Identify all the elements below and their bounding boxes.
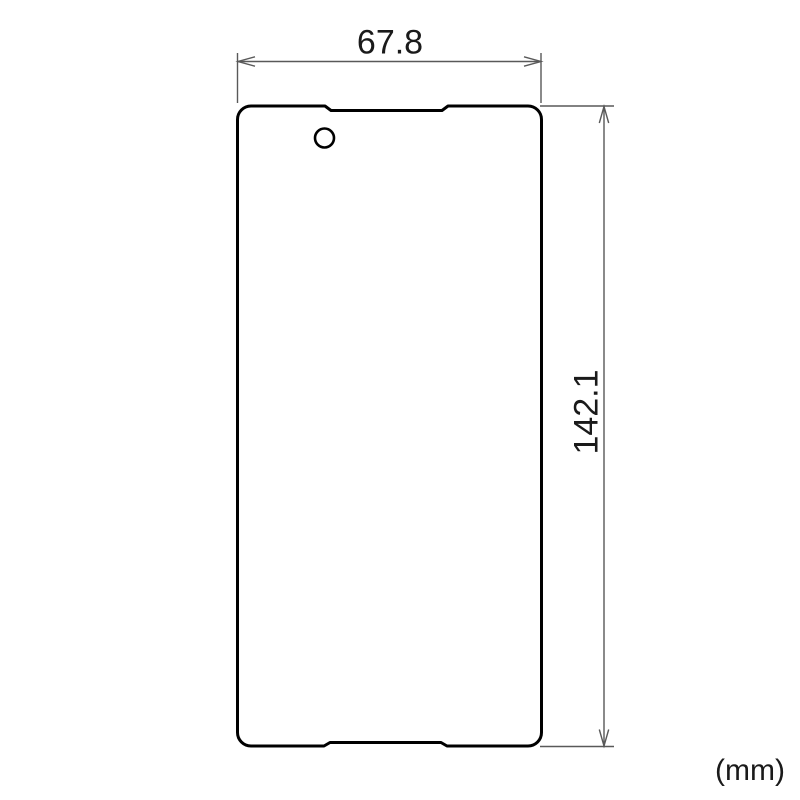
width-dimension-value: 67.8 bbox=[357, 24, 423, 62]
unit-label: (mm) bbox=[715, 754, 785, 787]
screen-protector-outline bbox=[238, 106, 542, 746]
height-dimension-value: 142.1 bbox=[568, 369, 606, 454]
screen-protector-dimension-diagram: 67.8 142.1 (mm) bbox=[0, 0, 800, 800]
dimension-diagram-canvas: 67.8 142.1 (mm) bbox=[0, 0, 800, 800]
